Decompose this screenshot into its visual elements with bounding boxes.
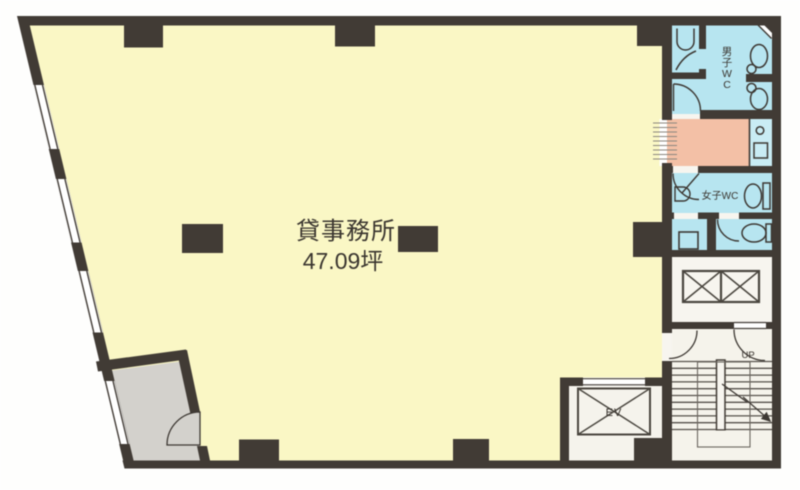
svg-text:C: C — [723, 79, 731, 91]
svg-text:女子WC: 女子WC — [702, 189, 739, 202]
svg-text:EV: EV — [606, 407, 623, 419]
svg-text:47.09坪: 47.09坪 — [303, 248, 384, 274]
svg-text:UP: UP — [742, 350, 755, 361]
svg-text:貸事務所: 貸事務所 — [296, 218, 396, 245]
